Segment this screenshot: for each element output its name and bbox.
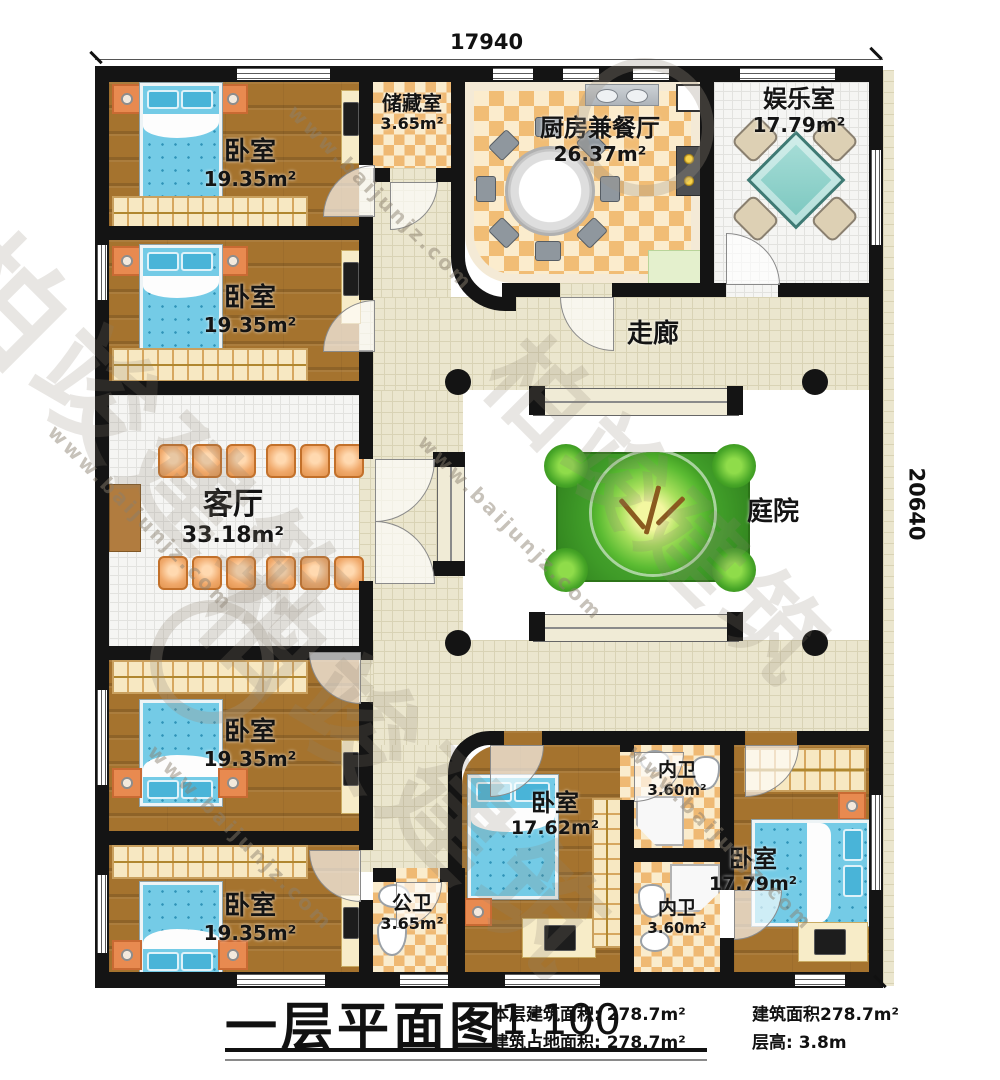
- info-floor-area: 本层建筑面积: 278.7m²: [492, 1000, 686, 1025]
- dining-chair: [488, 217, 521, 250]
- seat-cushion: [226, 556, 256, 590]
- kitchen-door-patch: [560, 283, 612, 297]
- rail-pier: [727, 612, 743, 641]
- wall: [359, 581, 373, 646]
- info-storey-height: 层高: 3.8m: [752, 1028, 847, 1053]
- bed-sheet: [143, 114, 219, 138]
- room-label-inner-bathroom1: 内卫 3.60m²: [632, 760, 722, 799]
- pillow: [181, 252, 213, 271]
- column: [802, 369, 828, 395]
- room-name: 内卫: [632, 898, 722, 920]
- room-label-kitchen: 厨房兼餐厅 26.37m²: [520, 115, 680, 166]
- info-building-area: 建筑面积278.7m²: [752, 1000, 899, 1025]
- room-area: 33.18m²: [173, 523, 293, 548]
- room-name: 卧室: [698, 846, 808, 874]
- seat-cushion: [300, 556, 330, 590]
- wall: [620, 731, 634, 752]
- room-area: 3.65m²: [371, 115, 453, 133]
- room-area: 17.79m²: [738, 114, 860, 137]
- nightstand: [112, 940, 142, 970]
- pillow: [843, 865, 863, 897]
- room-name: 卧室: [190, 718, 310, 748]
- room-name: 公卫: [374, 892, 450, 915]
- room-name: 储藏室: [371, 92, 453, 115]
- wall: [620, 800, 634, 974]
- wall: [359, 646, 373, 652]
- tv: [544, 925, 576, 951]
- sink-basin: [596, 89, 618, 103]
- dining-chair: [600, 176, 620, 202]
- pillow: [181, 90, 213, 109]
- room-area: 3.60m²: [632, 920, 722, 937]
- wall: [359, 900, 373, 974]
- wall: [542, 731, 745, 745]
- wall: [797, 731, 869, 745]
- pillow: [181, 952, 213, 971]
- wall: [95, 66, 109, 988]
- nightstand: [218, 246, 248, 276]
- seat-cushion: [158, 444, 188, 478]
- window: [871, 795, 881, 890]
- rail-pier: [529, 612, 545, 641]
- floor-plan-page: { "plan": { "dimensions": { "top": "1794…: [0, 0, 1000, 1080]
- shrub: [544, 548, 588, 592]
- window: [795, 974, 845, 986]
- closet: [112, 196, 308, 230]
- room-name: 走廊: [608, 320, 698, 350]
- nightstand: [112, 246, 142, 276]
- room-name: 厨房兼餐厅: [520, 115, 680, 143]
- wall: [359, 215, 373, 300]
- sink-basin: [626, 89, 648, 103]
- seat-cushion: [300, 444, 330, 478]
- pillow: [181, 780, 213, 799]
- tv: [343, 102, 359, 136]
- room-name: 卧室: [500, 790, 610, 818]
- room-label-storage: 储藏室 3.65m²: [371, 92, 453, 133]
- wall: [700, 66, 714, 297]
- room-area: 3.65m²: [374, 915, 450, 933]
- wall: [778, 283, 869, 297]
- window: [97, 875, 107, 953]
- room-label-bedroom-br: 卧室 17.79m²: [698, 846, 808, 895]
- room-area: 19.35m²: [190, 748, 310, 771]
- pillow: [843, 829, 863, 861]
- corridor-floor-bottom: [373, 640, 869, 745]
- rail-pier: [433, 561, 465, 576]
- wall: [359, 702, 373, 850]
- wall: [436, 168, 465, 182]
- nightstand: [112, 84, 142, 114]
- room-label-bedroom-bl1: 卧室 19.35m²: [190, 718, 310, 771]
- gallery-rail-top: [533, 388, 739, 416]
- room-label-public-bathroom: 公卫 3.65m²: [374, 892, 450, 933]
- room-label-bedroom-tl2: 卧室 19.35m²: [190, 284, 310, 337]
- burner: [683, 175, 695, 187]
- room-name: 卧室: [190, 892, 310, 922]
- dining-chair: [488, 129, 521, 162]
- room-area: 19.35m²: [190, 168, 310, 191]
- kitchen-counter: [648, 250, 702, 285]
- dining-chair: [476, 176, 496, 202]
- seat-cushion: [192, 556, 222, 590]
- seat-cushion: [226, 444, 256, 478]
- room-area: 17.79m²: [698, 874, 808, 896]
- window: [633, 68, 669, 80]
- info-footprint-area: 建筑占地面积: 278.7m²: [492, 1028, 686, 1053]
- gallery-rail-left: [437, 457, 465, 575]
- room-area: 17.62m²: [500, 818, 610, 840]
- pillow: [147, 780, 179, 799]
- wall: [714, 283, 726, 297]
- room-name: 卧室: [190, 284, 310, 314]
- window: [505, 974, 600, 986]
- nightstand: [218, 84, 248, 114]
- room-name: 娱乐室: [738, 86, 860, 114]
- wall: [359, 395, 373, 459]
- window: [97, 690, 107, 785]
- exterior-right-strip: [883, 70, 894, 986]
- window: [493, 68, 533, 80]
- burner: [683, 153, 695, 165]
- nightstand: [838, 792, 866, 820]
- dimension-tick: [89, 51, 102, 64]
- shrub: [712, 548, 756, 592]
- wall: [109, 831, 373, 845]
- room-area: 3.60m²: [632, 782, 722, 799]
- column: [445, 369, 471, 395]
- tv: [343, 262, 359, 296]
- room-label-entertainment: 娱乐室 17.79m²: [738, 86, 860, 137]
- closet: [112, 845, 308, 879]
- wall: [373, 168, 390, 182]
- shrub: [712, 444, 756, 488]
- wall: [720, 938, 734, 974]
- room-label-corridor: 走廊: [608, 320, 698, 350]
- rail-pier: [727, 386, 743, 415]
- seat-cushion: [192, 444, 222, 478]
- seat-cushion: [266, 444, 296, 478]
- room-name: 庭院: [728, 498, 818, 528]
- rail-pier: [529, 386, 545, 415]
- shrub: [544, 444, 588, 488]
- bathroom-door-patch: [396, 868, 440, 882]
- closet: [112, 660, 308, 694]
- room-name: 客厅: [173, 488, 293, 523]
- dimension-line-top: [95, 59, 883, 60]
- wall: [359, 350, 373, 395]
- tv: [814, 929, 846, 955]
- entertainment-door-patch: [726, 283, 778, 297]
- room-label-bedroom-bl2: 卧室 19.35m²: [190, 892, 310, 945]
- room-label-bedroom-bmid: 卧室 17.62m²: [500, 790, 610, 839]
- room-name: 卧室: [190, 138, 310, 168]
- wall: [451, 868, 465, 974]
- window: [237, 68, 330, 80]
- window: [871, 150, 881, 245]
- room-name: 内卫: [632, 760, 722, 782]
- wall: [451, 66, 465, 246]
- bed-sheet: [807, 823, 831, 923]
- seat-cushion: [266, 556, 296, 590]
- room-label-living: 客厅 33.18m²: [173, 488, 293, 548]
- window: [740, 68, 835, 80]
- nightstand: [112, 768, 142, 798]
- wall: [109, 381, 373, 395]
- seat-cushion: [158, 556, 188, 590]
- window: [97, 245, 107, 300]
- kitchen-sink: [585, 84, 659, 106]
- bedroom-br-door-patch: [745, 731, 797, 745]
- room-area: 19.35m²: [190, 922, 310, 945]
- nightstand: [464, 898, 492, 926]
- room-label-courtyard: 庭院: [728, 498, 818, 528]
- dimension-right-value: 20640: [905, 467, 929, 540]
- room-label-inner-bathroom2: 内卫 3.60m²: [632, 898, 722, 937]
- tv: [343, 752, 359, 786]
- dining-chair: [535, 241, 561, 261]
- side-cabinet: [109, 484, 141, 552]
- dimension-top-value: 17940: [450, 30, 523, 54]
- pillow: [147, 90, 179, 109]
- nightstand: [218, 768, 248, 798]
- rail-pier: [433, 452, 465, 467]
- room-area: 26.37m²: [520, 143, 680, 166]
- wall: [373, 868, 396, 882]
- room-label-bedroom-tl1: 卧室 19.35m²: [190, 138, 310, 191]
- gallery-rail-bottom: [533, 614, 739, 642]
- wall: [612, 283, 714, 297]
- column: [802, 630, 828, 656]
- closet: [112, 348, 308, 382]
- pillow: [147, 952, 179, 971]
- tv: [343, 907, 359, 939]
- column: [445, 630, 471, 656]
- window: [563, 68, 599, 80]
- room-area: 19.35m²: [190, 314, 310, 337]
- wall: [109, 226, 373, 240]
- wall: [502, 283, 560, 297]
- pillow: [147, 252, 179, 271]
